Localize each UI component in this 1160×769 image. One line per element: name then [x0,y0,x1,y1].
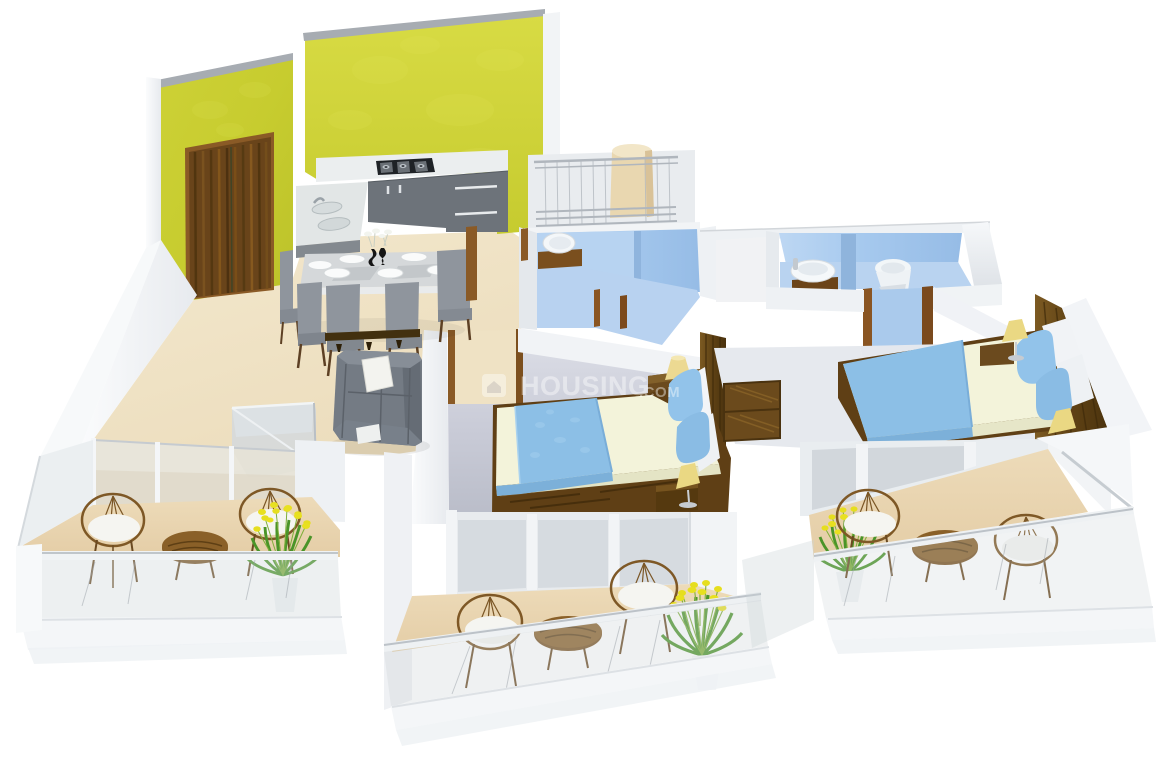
svg-text:HOUSING: HOUSING [520,371,650,401]
svg-text:.COM: .COM [639,384,680,401]
